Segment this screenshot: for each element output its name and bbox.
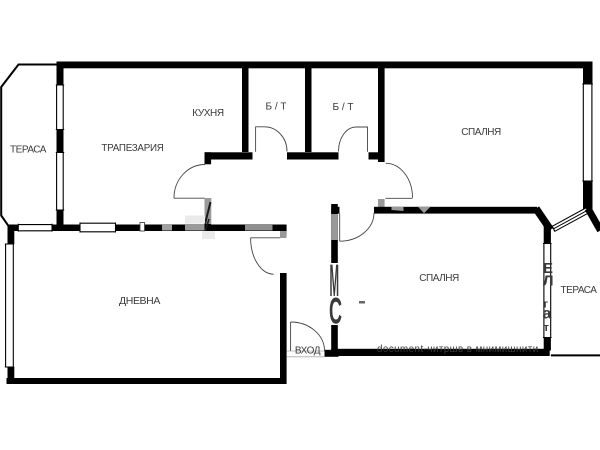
svg-text:ТЕРАСА: ТЕРАСА [561, 285, 598, 296]
svg-text:СПАЛНЯ: СПАЛНЯ [461, 127, 501, 138]
svg-text:document-читршв в мнимишнити: document-читршв в мнимишнити [377, 344, 539, 355]
svg-text:Б / Т: Б / Т [332, 102, 353, 113]
svg-text:ДНЕВНА: ДНЕВНА [119, 295, 160, 307]
svg-text:КУХНЯ: КУХНЯ [192, 108, 224, 119]
svg-text:ТРАПЕЗАРИЯ: ТРАПЕЗАРИЯ [101, 143, 163, 154]
svg-text:ВХОД: ВХОД [295, 346, 321, 357]
svg-text:Л: Л [543, 273, 554, 290]
svg-text:СПАЛНЯ: СПАЛНЯ [419, 273, 459, 284]
svg-text:т: т [544, 322, 550, 334]
svg-text:Б / Т: Б / Т [265, 102, 286, 113]
svg-text:а: а [543, 306, 552, 323]
svg-text:С: С [329, 290, 342, 332]
svg-text:ТЕРАСА: ТЕРАСА [10, 145, 47, 156]
